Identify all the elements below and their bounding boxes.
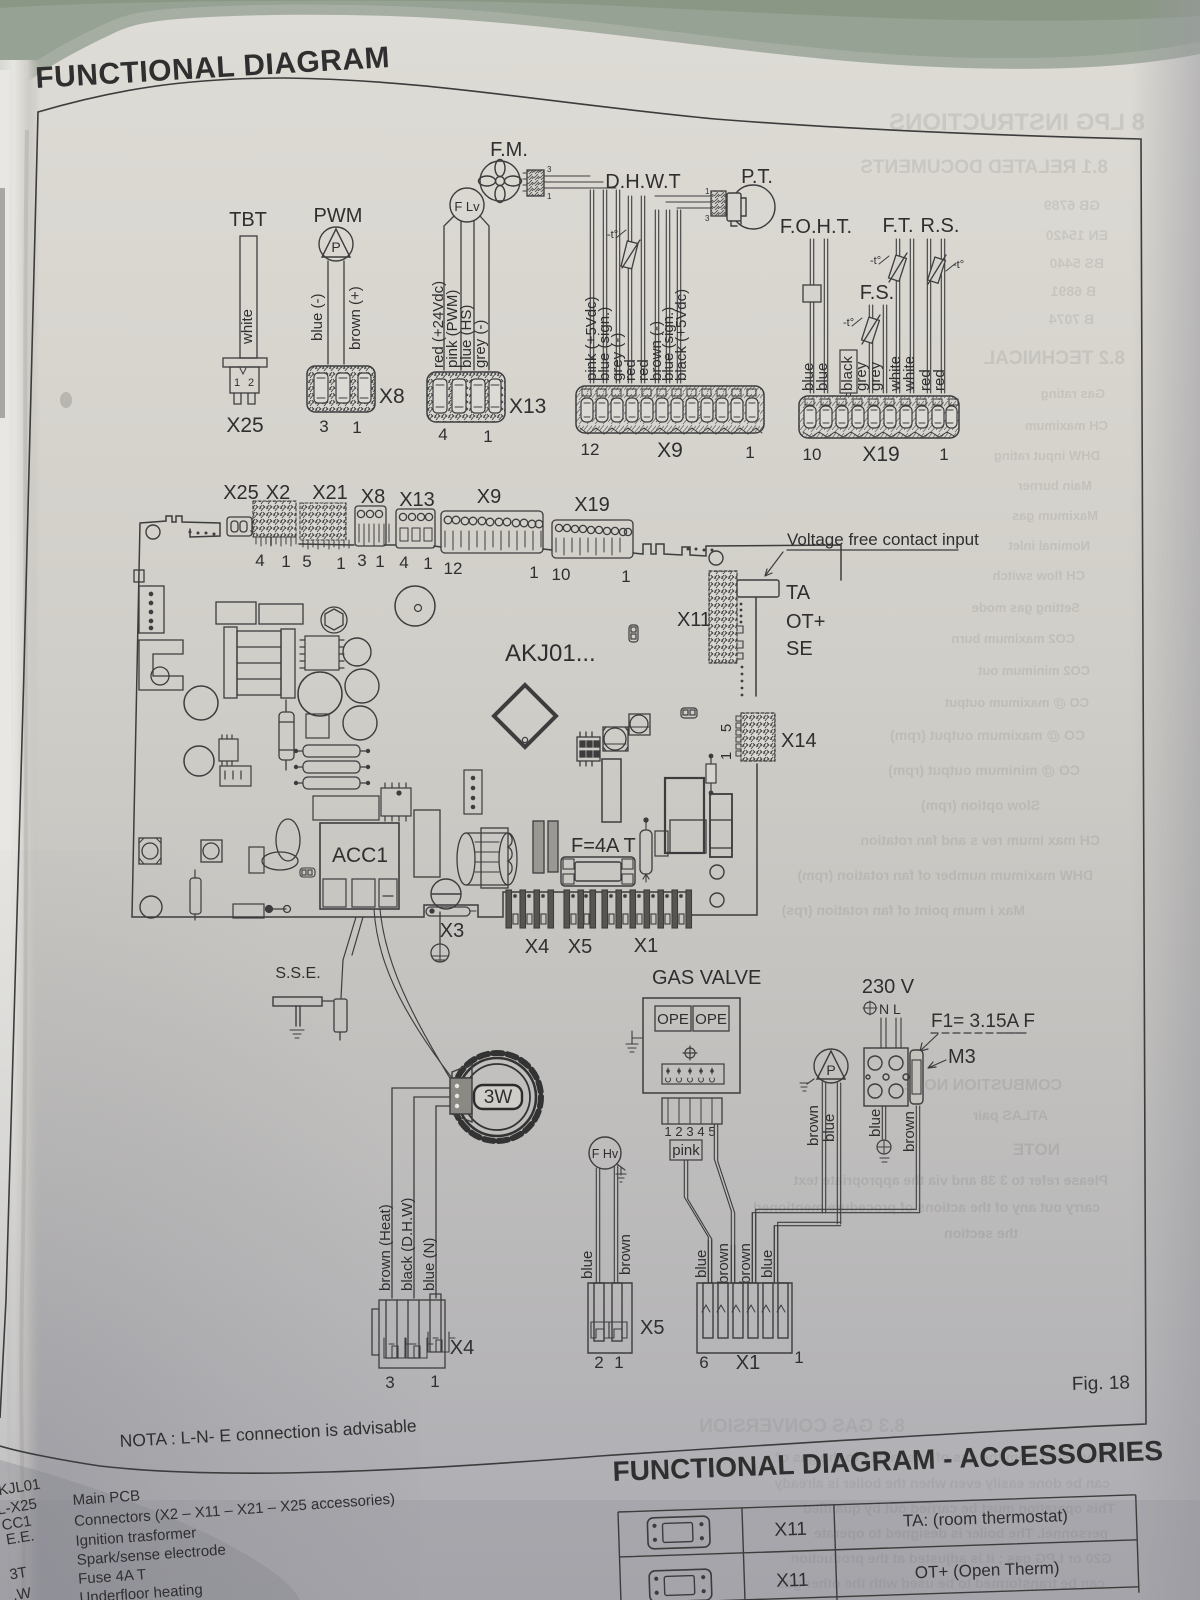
svg-text:DHW input rating: DHW input rating: [994, 448, 1100, 463]
svg-text:10: 10: [552, 565, 571, 584]
svg-text:1: 1: [547, 192, 552, 201]
svg-text:brown: brown: [737, 1243, 754, 1284]
svg-text:blue: blue: [759, 1250, 776, 1278]
svg-text:1: 1: [483, 427, 492, 446]
svg-text:CO2 maximum burn: CO2 maximum burn: [951, 631, 1075, 646]
svg-text:Max i mum point of fan rotatio: Max i mum point of fan rotation (rps): [782, 902, 1025, 918]
svg-text:blue: blue: [814, 363, 831, 391]
svg-text:black (D.H.W): black (D.H.W): [399, 1198, 416, 1291]
svg-text:X11: X11: [776, 1570, 809, 1592]
svg-text:the section: the section: [944, 1225, 1018, 1241]
svg-text:X9: X9: [657, 439, 683, 462]
svg-text:B 6891: B 6891: [1051, 283, 1096, 299]
svg-text:brown (+): brown (+): [347, 286, 364, 350]
svg-text:CO @ maximum output (rpm): CO @ maximum output (rpm): [890, 727, 1085, 743]
svg-text:F.O.H.T.: F.O.H.T.: [780, 216, 852, 238]
svg-text:1: 1: [430, 1372, 439, 1391]
svg-text:X8: X8: [361, 486, 385, 508]
svg-text:8.1 RELATED DOCUMENTS: 8.1 RELATED DOCUMENTS: [860, 157, 1108, 178]
svg-text:5: 5: [718, 724, 735, 732]
svg-text:F Hv: F Hv: [592, 1147, 619, 1161]
svg-text:X13: X13: [399, 489, 435, 511]
svg-text:M3: M3: [948, 1046, 976, 1068]
svg-text:1: 1: [745, 443, 754, 462]
svg-text:OT+: OT+: [786, 611, 825, 633]
svg-text:grey: grey: [867, 361, 884, 391]
svg-text:OPE: OPE: [695, 1011, 727, 1028]
svg-text:10: 10: [803, 445, 822, 464]
svg-text:blue: blue: [867, 1109, 884, 1137]
svg-text:1: 1: [939, 445, 948, 464]
svg-text:1: 1: [375, 552, 384, 571]
svg-text:3T: 3T: [8, 1564, 28, 1584]
svg-text:3: 3: [319, 417, 328, 436]
svg-text:NOTE: NOTE: [1013, 1140, 1060, 1159]
svg-text:1: 1: [352, 418, 361, 437]
svg-text:X5: X5: [568, 936, 592, 958]
svg-text:X5: X5: [640, 1317, 664, 1339]
svg-text:GB 6789: GB 6789: [1044, 197, 1100, 213]
svg-text:ACC1: ACC1: [332, 844, 388, 867]
svg-text:X3: X3: [440, 920, 464, 942]
svg-text:-t°: -t°: [843, 317, 854, 329]
svg-text:4: 4: [438, 425, 447, 444]
svg-text:X11: X11: [677, 609, 711, 631]
svg-text:PWM: PWM: [314, 205, 363, 227]
svg-text:3: 3: [357, 551, 366, 570]
svg-text:1: 1: [794, 1348, 803, 1367]
svg-text:-t°: -t°: [953, 259, 964, 271]
svg-text:blue (-): blue (-): [309, 293, 326, 341]
svg-text:2: 2: [248, 377, 254, 389]
svg-text:4: 4: [255, 551, 264, 570]
svg-text:X1: X1: [736, 1352, 760, 1374]
svg-text:X21: X21: [312, 482, 348, 504]
svg-text:1: 1: [614, 1353, 623, 1372]
svg-text:.W: .W: [12, 1584, 34, 1600]
svg-text:1: 1: [621, 567, 630, 586]
svg-text:white: white: [239, 309, 256, 345]
svg-text:GAS VALVE: GAS VALVE: [652, 967, 761, 989]
svg-text:2: 2: [594, 1353, 603, 1372]
svg-text:X25: X25: [226, 414, 263, 437]
svg-text:blue: blue: [579, 1251, 596, 1279]
svg-text:4: 4: [399, 553, 408, 572]
svg-text:F Lv: F Lv: [454, 199, 480, 214]
svg-text:12: 12: [444, 559, 463, 578]
svg-text:X11: X11: [774, 1519, 807, 1541]
svg-text:X19: X19: [574, 494, 610, 516]
svg-text:red: red: [931, 369, 948, 391]
svg-text:3W: 3W: [484, 1087, 513, 1108]
svg-text:12: 12: [581, 440, 600, 459]
svg-text:X1: X1: [634, 935, 658, 957]
svg-text:brown: brown: [805, 1105, 822, 1146]
svg-text:230 V: 230 V: [862, 976, 915, 998]
svg-text:N L: N L: [879, 1001, 901, 1017]
svg-text:X13: X13: [509, 395, 546, 418]
svg-text:CO2 minimum out: CO2 minimum out: [977, 663, 1090, 678]
svg-text:CH maximum: CH maximum: [1025, 418, 1108, 433]
svg-text:BS 5440: BS 5440: [1049, 255, 1104, 271]
svg-text:pink: pink: [672, 1142, 700, 1159]
svg-text:brown: brown: [715, 1243, 732, 1284]
svg-text:blue (N): blue (N): [421, 1238, 438, 1291]
svg-text:EN 15420: EN 15420: [1046, 227, 1108, 243]
svg-text:R.S.: R.S.: [921, 215, 960, 237]
svg-text:X14: X14: [781, 730, 817, 752]
svg-text:CO @ maximum output: CO @ maximum output: [944, 695, 1089, 710]
svg-text:1: 1: [281, 552, 290, 571]
svg-text:CH flow switch: CH flow switch: [992, 568, 1085, 583]
svg-text:white: white: [901, 356, 918, 392]
svg-text:X4: X4: [525, 936, 549, 958]
svg-text:AKJ01...: AKJ01...: [505, 640, 596, 667]
svg-text:COMBUSTION NOTE: COMBUSTION NOTE: [903, 1077, 1062, 1094]
svg-text:B 7074: B 7074: [1049, 311, 1094, 327]
svg-text:F1= 3.15A F: F1= 3.15A F: [931, 1011, 1035, 1032]
svg-text:3: 3: [547, 165, 552, 174]
svg-text:-t°: -t°: [870, 255, 881, 267]
svg-text:1: 1: [705, 187, 710, 196]
svg-text:brown: brown: [617, 1234, 634, 1275]
svg-text:F.M.: F.M.: [490, 139, 528, 161]
svg-text:SE: SE: [786, 638, 813, 660]
svg-text:1: 1: [718, 752, 735, 760]
svg-text:brown (Heat): brown (Heat): [377, 1204, 394, 1291]
svg-text:Voltage free contact input: Voltage free contact input: [787, 530, 979, 549]
svg-text:P: P: [331, 239, 340, 255]
svg-text:F=4A T: F=4A T: [571, 835, 636, 857]
svg-text:Main burner: Main burner: [1018, 478, 1092, 493]
svg-text:8.2 TECHNICAL: 8.2 TECHNICAL: [983, 348, 1125, 369]
svg-text:Fig. 18: Fig. 18: [1072, 1372, 1131, 1395]
svg-text:4: 4: [697, 1124, 704, 1139]
svg-text:F.T.: F.T.: [882, 215, 913, 237]
svg-text:blue: blue: [693, 1250, 710, 1278]
svg-text:1: 1: [664, 1124, 671, 1139]
svg-text:X8: X8: [379, 385, 405, 408]
svg-text:CH max imum rev s and fan rota: CH max imum rev s and fan rotation: [860, 832, 1100, 848]
svg-text:2: 2: [675, 1124, 682, 1139]
svg-text:TA: TA: [786, 582, 811, 604]
svg-text:DHW maximum number of fan rota: DHW maximum number of fan rotation (rpm): [797, 867, 1093, 883]
svg-text:5: 5: [302, 552, 311, 571]
svg-text:black (+5Vdc): black (+5Vdc): [673, 289, 690, 381]
svg-text:TBT: TBT: [229, 209, 267, 231]
svg-text:D.H.W.T: D.H.W.T: [605, 171, 681, 193]
svg-text:X4: X4: [450, 1337, 474, 1359]
svg-text:8.3 GAS CONVERSION: 8.3 GAS CONVERSION: [699, 1416, 905, 1437]
svg-text:grey (-): grey (-): [472, 320, 489, 368]
svg-text:3: 3: [686, 1124, 693, 1139]
svg-text:Setting gas mode: Setting gas mode: [972, 600, 1080, 615]
svg-text:Slow option (rpm): Slow option (rpm): [921, 797, 1040, 813]
svg-text:X9: X9: [477, 486, 501, 508]
svg-text:Maximum gas: Maximum gas: [1012, 508, 1098, 523]
svg-text:1: 1: [336, 554, 345, 573]
svg-text:X19: X19: [862, 443, 899, 466]
svg-text:1: 1: [529, 563, 538, 582]
svg-text:F.S.: F.S.: [860, 282, 894, 304]
svg-text:1: 1: [234, 377, 240, 389]
svg-text:OPE: OPE: [657, 1011, 689, 1028]
svg-text:blue: blue: [821, 1114, 838, 1142]
svg-text:S.S.E.: S.S.E.: [275, 965, 320, 982]
svg-text:P: P: [826, 1062, 835, 1078]
svg-text:3: 3: [705, 214, 710, 223]
svg-text:3: 3: [385, 1373, 394, 1392]
svg-text:brown: brown: [901, 1111, 918, 1152]
svg-text:ATLAS pair: ATLAS pair: [972, 1107, 1048, 1123]
svg-text:Gas rating: Gas rating: [1041, 386, 1105, 401]
svg-text:-t°: -t°: [607, 229, 618, 241]
svg-text:1: 1: [423, 554, 432, 573]
svg-text:6: 6: [699, 1353, 708, 1372]
svg-text:Nominal inlet: Nominal inlet: [1008, 538, 1090, 553]
svg-text:CO @ minimum output (rpm): CO @ minimum output (rpm): [888, 762, 1080, 778]
